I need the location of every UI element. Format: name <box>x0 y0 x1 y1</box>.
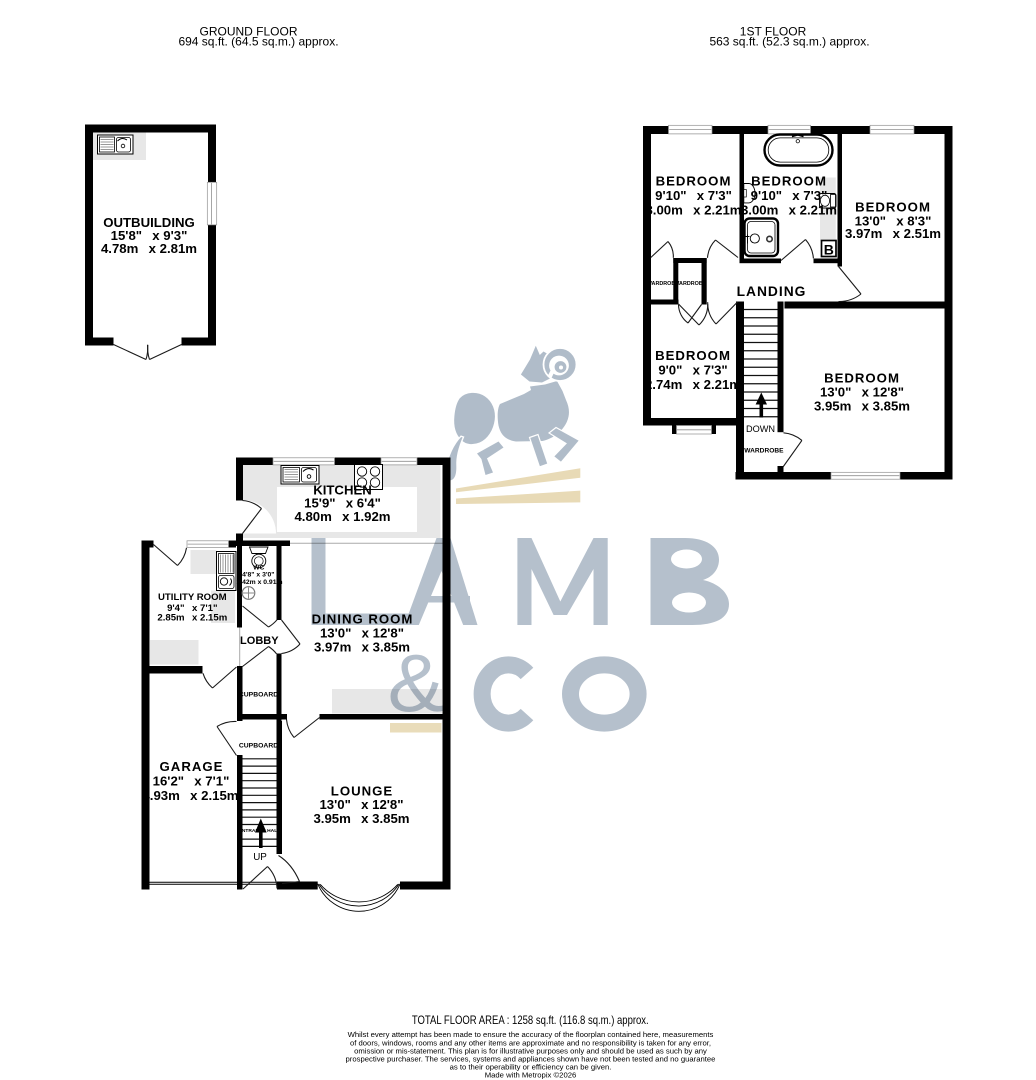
svg-text:&: & <box>388 637 445 729</box>
